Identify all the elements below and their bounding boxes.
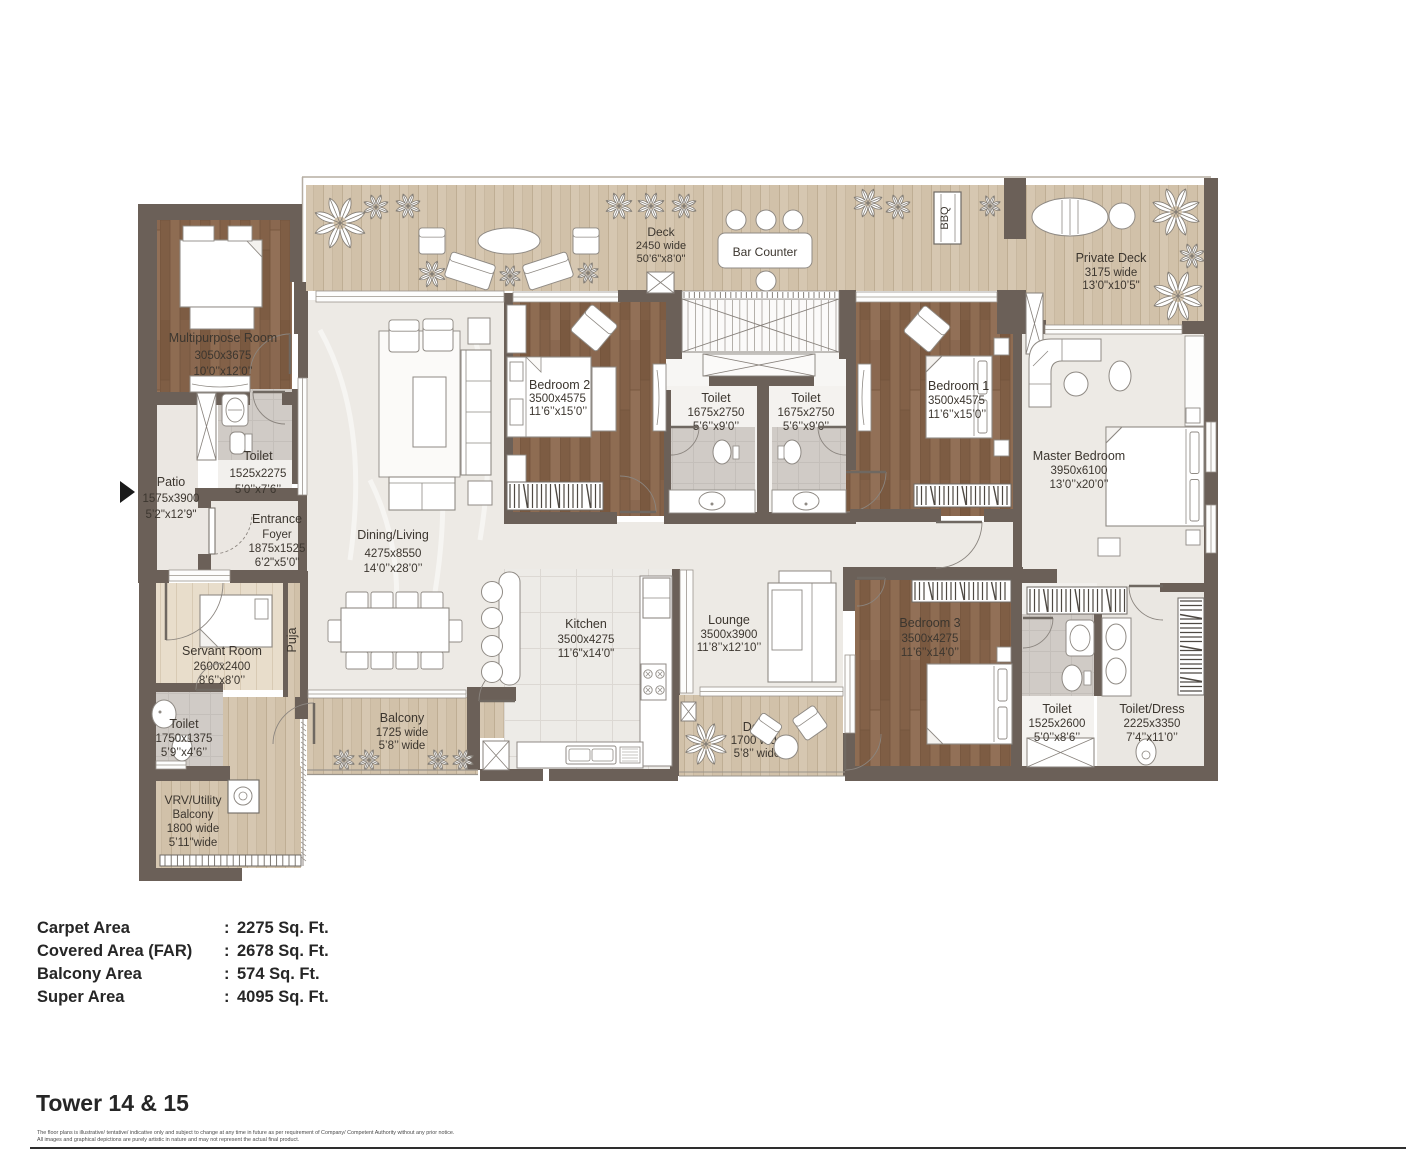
svg-text::: : xyxy=(224,965,230,983)
svg-text:3950x6100: 3950x6100 xyxy=(1051,465,1108,477)
svg-text:8’6’’x8’0’’: 8’6’’x8’0’’ xyxy=(199,675,245,687)
svg-text:11’6"x14’0": 11’6"x14’0" xyxy=(558,648,615,660)
svg-text:Kitchen: Kitchen xyxy=(565,617,607,631)
svg-text:1575x3900: 1575x3900 xyxy=(143,493,200,505)
svg-text:1750x1375: 1750x1375 xyxy=(156,733,213,745)
svg-text:Balcony: Balcony xyxy=(173,809,214,821)
svg-text:5’0’’x8’6’’: 5’0’’x8’6’’ xyxy=(1034,732,1080,744)
svg-text::: : xyxy=(224,988,230,1006)
svg-text::: : xyxy=(224,919,230,937)
svg-text:5’11"wide: 5’11"wide xyxy=(169,837,218,849)
svg-text:Foyer: Foyer xyxy=(262,529,292,541)
svg-text:11’6’’x15’0’’: 11’6’’x15’0’’ xyxy=(529,406,587,418)
svg-text:Entrance: Entrance xyxy=(252,512,302,526)
svg-text:All images and graphical depic: All images and graphical depictions are … xyxy=(37,1137,299,1143)
svg-text:2678 Sq. Ft.: 2678 Sq. Ft. xyxy=(237,942,329,960)
svg-text:Carpet Area: Carpet Area xyxy=(37,919,131,937)
svg-text:Toilet: Toilet xyxy=(169,717,199,731)
svg-text:Puja: Puja xyxy=(285,627,299,652)
svg-text:Toilet: Toilet xyxy=(701,391,731,405)
svg-text:Covered Area (FAR): Covered Area (FAR) xyxy=(37,942,192,960)
svg-text:Bedroom 1: Bedroom 1 xyxy=(928,379,989,393)
svg-text:1800 wide: 1800 wide xyxy=(167,823,219,835)
svg-text:4275x8550: 4275x8550 xyxy=(365,548,422,560)
svg-text:Bedroom 3: Bedroom 3 xyxy=(899,616,960,630)
svg-text:3500x4275: 3500x4275 xyxy=(558,634,615,646)
svg-text:Lounge: Lounge xyxy=(708,613,750,627)
svg-text:2225x3350: 2225x3350 xyxy=(1124,718,1181,730)
svg-text:1675x2750: 1675x2750 xyxy=(688,407,745,419)
svg-text:BBQ: BBQ xyxy=(939,206,951,230)
svg-text:5’8’’ wide: 5’8’’ wide xyxy=(379,740,426,752)
svg-text:11’8’’x12’10’’: 11’8’’x12’10’’ xyxy=(697,642,762,654)
svg-text:Dining/Living: Dining/Living xyxy=(357,528,429,542)
svg-text:3500x4275: 3500x4275 xyxy=(902,633,959,645)
svg-text:1875x1525: 1875x1525 xyxy=(249,543,306,555)
svg-text:Toilet/Dress: Toilet/Dress xyxy=(1119,702,1184,716)
svg-text:5’2"x12’9": 5’2"x12’9" xyxy=(145,509,196,521)
svg-text:1525x2275: 1525x2275 xyxy=(230,468,287,480)
svg-text:3500x4575: 3500x4575 xyxy=(928,395,985,407)
svg-text:3500x4575: 3500x4575 xyxy=(529,393,586,405)
svg-text:5’0’’x7’6’’: 5’0’’x7’6’’ xyxy=(235,484,281,496)
svg-text:Bedroom 2: Bedroom 2 xyxy=(529,378,590,392)
svg-text:5’9’’x4’6’’: 5’9’’x4’6’’ xyxy=(161,747,207,759)
svg-text::: : xyxy=(224,942,230,960)
svg-text:Servant Room: Servant Room xyxy=(182,644,262,658)
svg-text:1525x2600: 1525x2600 xyxy=(1029,718,1086,730)
svg-text:14’0’’x28’0’’: 14’0’’x28’0’’ xyxy=(363,563,422,575)
svg-text:Balcony Area: Balcony Area xyxy=(37,965,143,983)
svg-text:Toilet: Toilet xyxy=(791,391,821,405)
svg-text:574 Sq. Ft.: 574 Sq. Ft. xyxy=(237,965,320,983)
svg-text:4095 Sq. Ft.: 4095 Sq. Ft. xyxy=(237,988,329,1006)
svg-text:11’6’’x14’0’’: 11’6’’x14’0’’ xyxy=(901,647,959,659)
svg-text:Super Area: Super Area xyxy=(37,988,125,1006)
svg-text:11’6’’x15’0’’: 11’6’’x15’0’’ xyxy=(928,409,986,421)
svg-text:3175 wide: 3175 wide xyxy=(1085,267,1137,279)
svg-text:50’6"x8’0": 50’6"x8’0" xyxy=(637,253,686,265)
svg-text:6’2"x5’0": 6’2"x5’0" xyxy=(255,557,300,569)
svg-text:Private Deck: Private Deck xyxy=(1076,251,1148,265)
svg-text:Tower 14 & 15: Tower 14 & 15 xyxy=(36,1090,189,1116)
svg-text:2275 Sq. Ft.: 2275 Sq. Ft. xyxy=(237,919,329,937)
svg-text:Patio: Patio xyxy=(157,475,186,489)
svg-text:13’0"x10’5": 13’0"x10’5" xyxy=(1082,280,1139,292)
svg-text:10’0’’x12’0’’: 10’0’’x12’0’’ xyxy=(193,366,252,378)
svg-text:3050x3675: 3050x3675 xyxy=(195,350,252,362)
svg-text:Multipurpose Room: Multipurpose Room xyxy=(169,331,277,345)
svg-text:Deck: Deck xyxy=(647,225,675,239)
svg-text:1675x2750: 1675x2750 xyxy=(778,407,835,419)
svg-text:Master Bedroom: Master Bedroom xyxy=(1033,449,1125,463)
svg-text:2450 wide: 2450 wide xyxy=(636,240,686,252)
svg-text:3500x3900: 3500x3900 xyxy=(701,629,758,641)
svg-text:5’6’’x9’0’’: 5’6’’x9’0’’ xyxy=(693,421,739,433)
svg-text:Toilet: Toilet xyxy=(243,449,273,463)
svg-text:13’0’’x20’0’’: 13’0’’x20’0’’ xyxy=(1049,479,1108,491)
svg-text:Toilet: Toilet xyxy=(1042,702,1072,716)
svg-text:7’4’’x11’0’’: 7’4’’x11’0’’ xyxy=(1126,732,1178,744)
svg-text:5’8’’ wide: 5’8’’ wide xyxy=(734,748,781,760)
svg-text:Bar Counter: Bar Counter xyxy=(733,245,798,259)
svg-text:Balcony: Balcony xyxy=(380,711,425,725)
svg-text:VRV/Utility: VRV/Utility xyxy=(164,793,221,807)
svg-text:The floor plans is illustrativ: The floor plans is illustrative/ tentati… xyxy=(37,1130,454,1136)
svg-text:1725 wide: 1725 wide xyxy=(376,727,428,739)
